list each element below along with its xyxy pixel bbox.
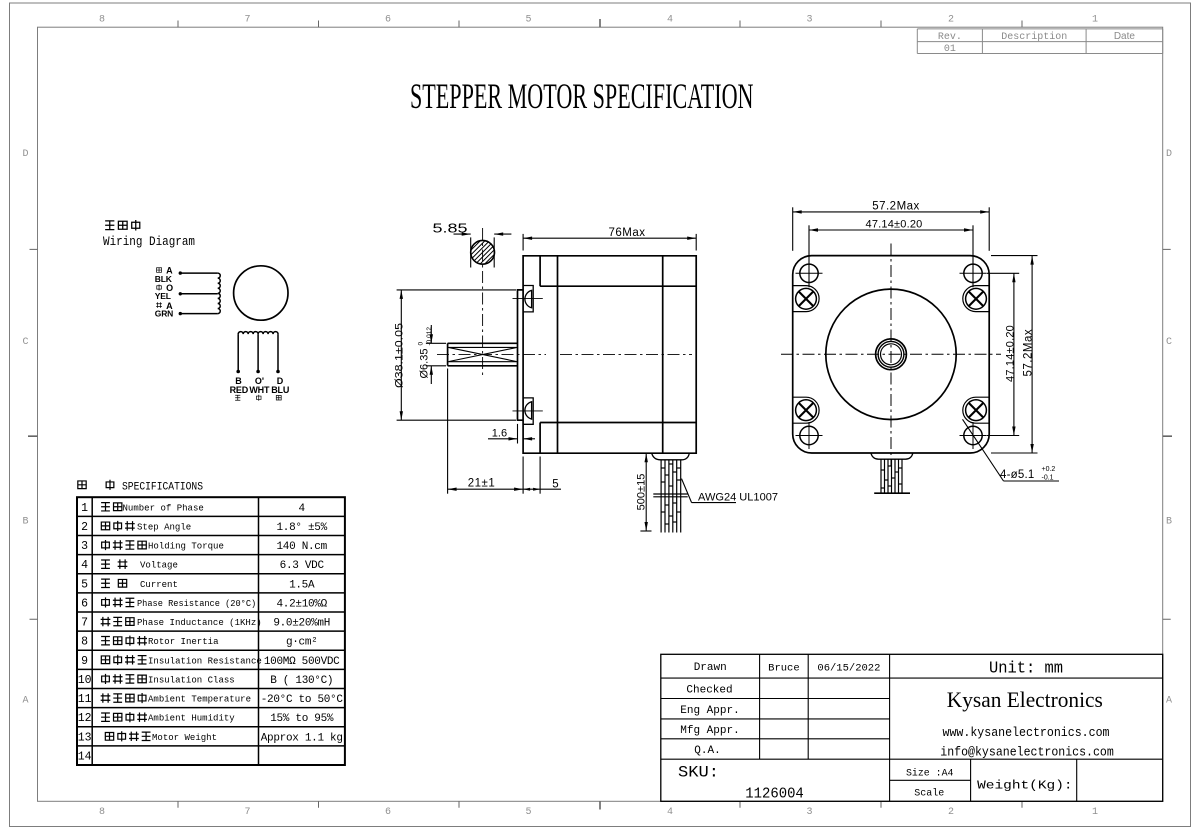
svg-text:YEL: YEL xyxy=(155,291,171,301)
svg-text:1: 1 xyxy=(1092,807,1098,818)
svg-text:1.8° ±5%: 1.8° ±5% xyxy=(276,522,327,534)
svg-text:D: D xyxy=(22,149,28,160)
svg-text:-0.1: -0.1 xyxy=(1042,475,1054,482)
svg-text:info@kysanelectronics.com: info@kysanelectronics.com xyxy=(940,746,1114,760)
svg-text:-20°C to 50°C: -20°C to 50°C xyxy=(261,694,344,706)
svg-text:6: 6 xyxy=(81,597,88,610)
svg-text:6: 6 xyxy=(385,15,391,26)
svg-text:Bruce: Bruce xyxy=(768,663,800,675)
svg-text:4: 4 xyxy=(81,559,88,572)
svg-text:B ( 130°C): B ( 130°C) xyxy=(270,675,333,687)
svg-text:Drawn: Drawn xyxy=(694,662,727,674)
svg-text:8: 8 xyxy=(99,807,105,818)
svg-text:C: C xyxy=(22,337,28,348)
svg-text:8: 8 xyxy=(99,15,105,26)
svg-text:76Max: 76Max xyxy=(608,227,645,239)
svg-text:Current: Current xyxy=(140,579,178,590)
svg-text:BLU: BLU xyxy=(271,385,289,395)
svg-text:4: 4 xyxy=(667,807,673,818)
svg-text:14: 14 xyxy=(78,750,92,763)
svg-text:g·cm²: g·cm² xyxy=(286,637,318,649)
svg-text:7: 7 xyxy=(244,807,250,818)
svg-text:Ø38.1±0.05: Ø38.1±0.05 xyxy=(394,323,406,388)
svg-text:Description: Description xyxy=(1001,31,1067,43)
svg-text:4.2±10%Ω: 4.2±10%Ω xyxy=(276,598,327,610)
svg-text:3: 3 xyxy=(806,807,812,818)
svg-text:B: B xyxy=(1166,517,1172,528)
svg-text:7: 7 xyxy=(81,617,88,630)
svg-text:01: 01 xyxy=(944,44,956,55)
svg-text:Wiring Diagram: Wiring Diagram xyxy=(103,235,195,249)
svg-text:B: B xyxy=(22,517,28,528)
svg-text:2: 2 xyxy=(948,807,954,818)
svg-text:8: 8 xyxy=(81,636,88,649)
svg-text:GRN: GRN xyxy=(155,309,173,319)
svg-text:Checked: Checked xyxy=(686,685,732,697)
svg-text:Step Angle: Step Angle xyxy=(137,521,191,532)
svg-text:1.6: 1.6 xyxy=(492,428,507,440)
svg-text:4-ø5.1: 4-ø5.1 xyxy=(1000,469,1034,481)
svg-text:Date: Date xyxy=(1114,31,1136,42)
svg-text:Q.A.: Q.A. xyxy=(694,745,720,757)
svg-text:4: 4 xyxy=(299,503,306,515)
svg-text:C: C xyxy=(1166,337,1172,348)
svg-text:5: 5 xyxy=(525,807,531,818)
svg-text:3: 3 xyxy=(806,15,812,26)
svg-text:+0.2: +0.2 xyxy=(1042,466,1056,473)
svg-text:1: 1 xyxy=(81,502,88,515)
svg-text:WHT: WHT xyxy=(249,385,270,395)
svg-text:0: 0 xyxy=(418,342,425,346)
svg-text:Voltage: Voltage xyxy=(140,560,178,571)
svg-text:7: 7 xyxy=(244,15,250,26)
svg-text:1.5A: 1.5A xyxy=(289,579,315,591)
svg-text:AWG24 UL1007: AWG24 UL1007 xyxy=(698,492,778,504)
svg-text:11: 11 xyxy=(78,693,92,706)
svg-text:100MΩ 500VDC: 100MΩ 500VDC xyxy=(264,656,340,668)
svg-text:2: 2 xyxy=(948,15,954,26)
svg-text:SKU:: SKU: xyxy=(678,764,719,782)
svg-text:Insulation Class: Insulation Class xyxy=(148,674,235,685)
svg-text:1: 1 xyxy=(1092,15,1098,26)
svg-text:47.14±0.20: 47.14±0.20 xyxy=(866,219,923,231)
svg-text:Kysan Electronics: Kysan Electronics xyxy=(947,687,1103,712)
svg-text:Eng Appr.: Eng Appr. xyxy=(680,705,739,717)
svg-text:1126004: 1126004 xyxy=(745,786,804,803)
svg-text:Weight(Kg):: Weight(Kg): xyxy=(977,779,1073,793)
svg-text:47.14±0.20: 47.14±0.20 xyxy=(1005,325,1017,382)
svg-text:Size :A4: Size :A4 xyxy=(906,768,954,780)
svg-text:9.0±20%mH: 9.0±20%mH xyxy=(273,618,330,630)
svg-text:A: A xyxy=(22,696,28,707)
svg-text:Motor Weight: Motor Weight xyxy=(152,732,217,743)
svg-text:9: 9 xyxy=(81,655,88,668)
svg-text:Ambient Temperature: Ambient Temperature xyxy=(148,694,251,705)
svg-text:4: 4 xyxy=(667,15,673,26)
svg-text:3: 3 xyxy=(81,540,88,553)
svg-text:5: 5 xyxy=(81,578,88,591)
svg-text:Ambient Humidity: Ambient Humidity xyxy=(148,713,235,724)
svg-text:6.3 VDC: 6.3 VDC xyxy=(280,560,325,572)
svg-text:15% to 95%: 15% to 95% xyxy=(270,713,334,725)
svg-text:Phase Resistance (20°C): Phase Resistance (20°C) xyxy=(137,598,256,609)
svg-text:SPECIFICATIONS: SPECIFICATIONS xyxy=(122,482,203,494)
svg-text:Rev.: Rev. xyxy=(938,32,962,43)
svg-text:13: 13 xyxy=(78,731,92,744)
svg-text:6: 6 xyxy=(385,807,391,818)
svg-text:Scale: Scale xyxy=(914,788,944,800)
svg-text:D: D xyxy=(1166,149,1172,160)
svg-text:57.2Max: 57.2Max xyxy=(872,201,920,213)
svg-text:Holding Torque: Holding Torque xyxy=(148,541,224,552)
svg-text:Phase Inductance (1KHz): Phase Inductance (1KHz) xyxy=(137,617,262,628)
svg-text:06/15/2022: 06/15/2022 xyxy=(817,663,880,675)
svg-text:21±1: 21±1 xyxy=(468,478,496,490)
svg-text:5: 5 xyxy=(525,15,531,26)
svg-text:10: 10 xyxy=(78,674,92,687)
svg-text:Mfg Appr.: Mfg Appr. xyxy=(680,725,739,737)
svg-text:STEPPER MOTOR SPECIFICATION: STEPPER MOTOR SPECIFICATION xyxy=(410,76,754,116)
svg-text:Unit: mm: Unit: mm xyxy=(989,660,1063,679)
svg-text:Number of Phase: Number of Phase xyxy=(123,502,205,513)
svg-text:57.2Max: 57.2Max xyxy=(1023,329,1035,377)
svg-text:www.kysanelectronics.com: www.kysanelectronics.com xyxy=(943,726,1110,740)
svg-text:140 N.cm: 140 N.cm xyxy=(276,541,327,553)
svg-text:Approx 1.1 kg: Approx 1.1 kg xyxy=(261,732,343,744)
svg-text:Insulation Resistance: Insulation Resistance xyxy=(148,655,262,666)
svg-text:Ø6.35: Ø6.35 xyxy=(419,349,431,379)
svg-text:12: 12 xyxy=(78,712,92,725)
svg-text:A: A xyxy=(1166,696,1172,707)
svg-text:Rotor Inertia: Rotor Inertia xyxy=(148,636,219,647)
svg-text:2: 2 xyxy=(81,521,88,534)
svg-text:RED: RED xyxy=(230,385,249,395)
